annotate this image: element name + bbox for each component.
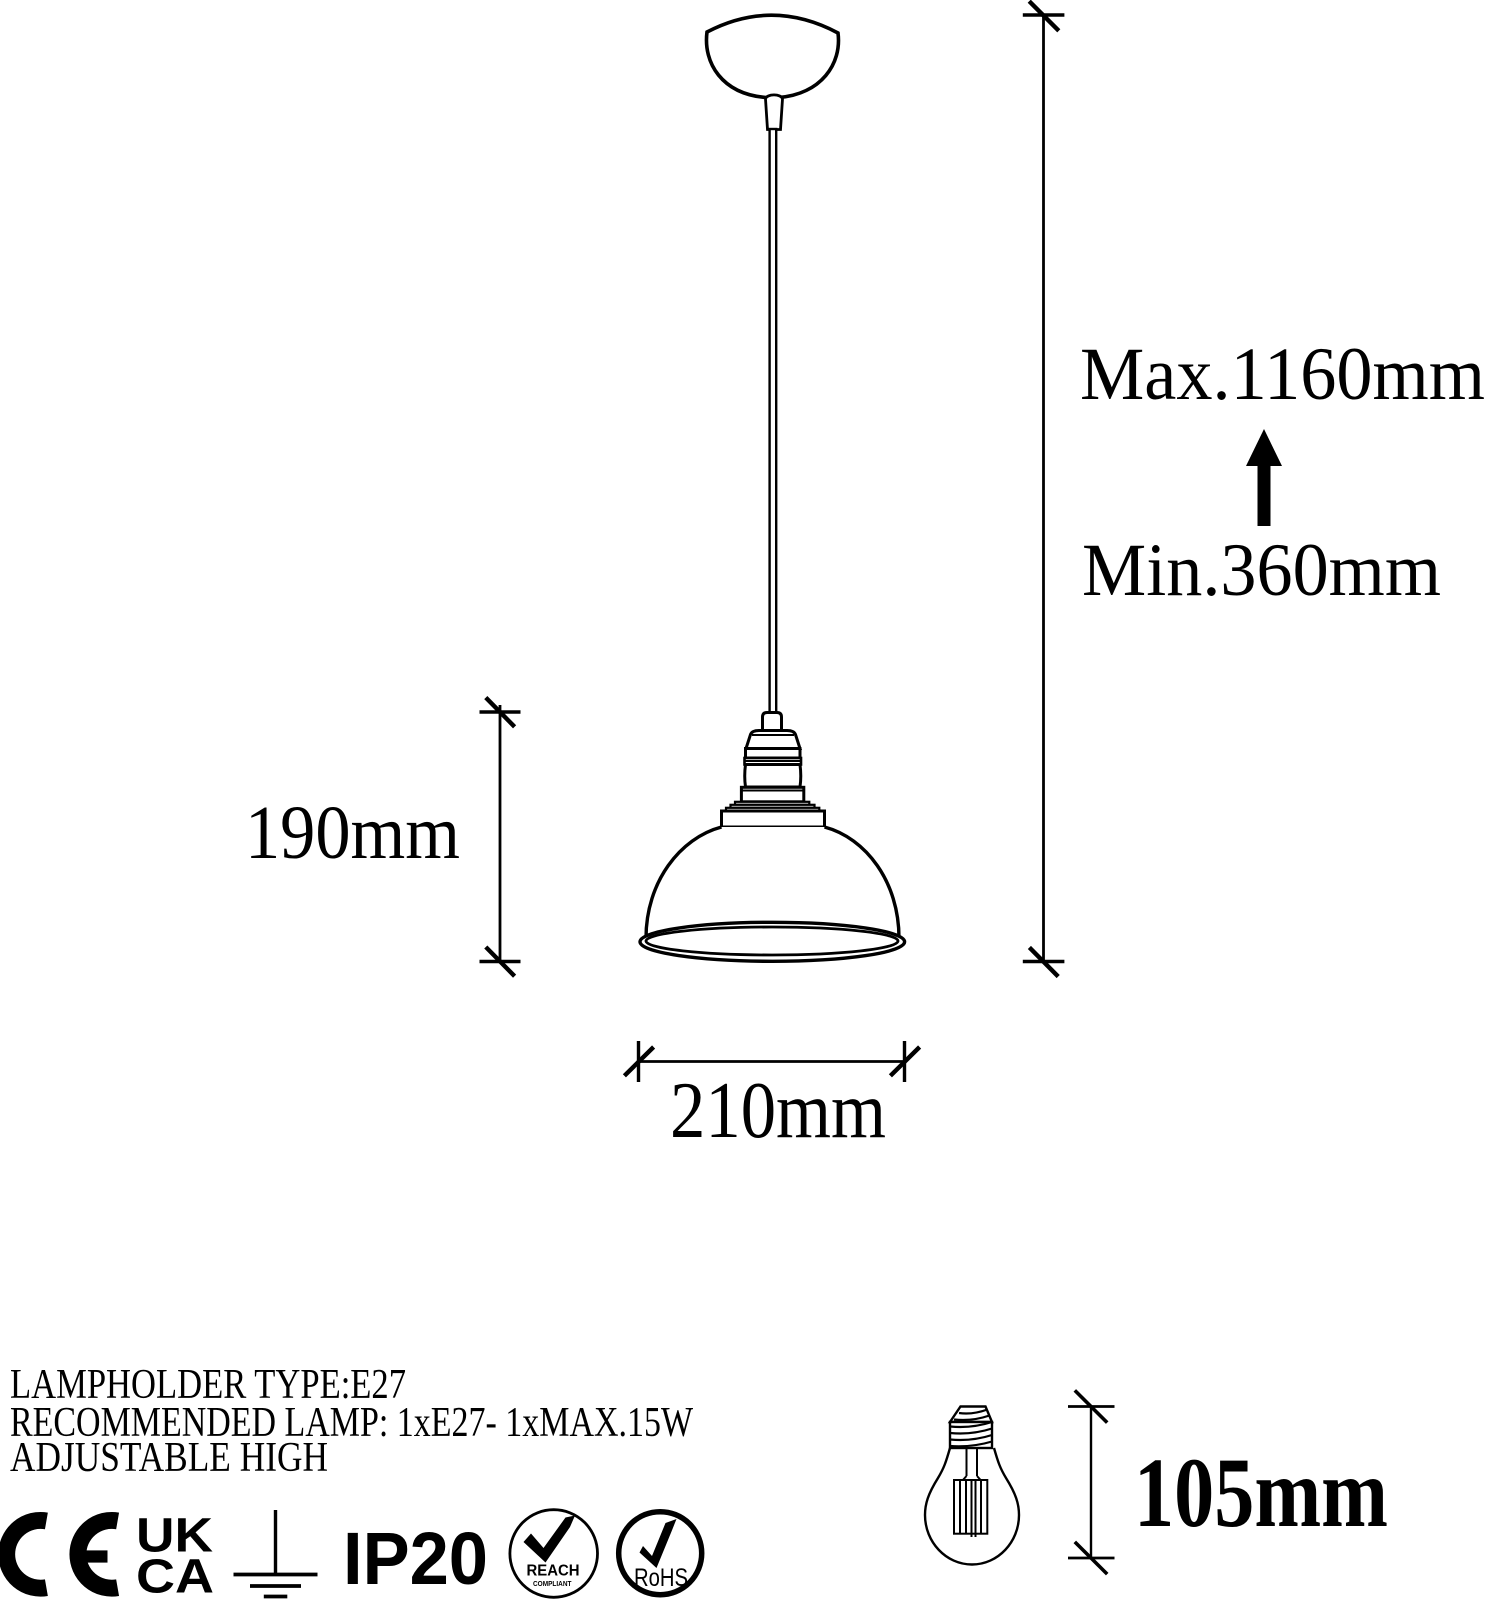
svg-text:IP20: IP20 [343,1517,488,1600]
svg-text:REACH: REACH [527,1563,580,1580]
svg-text:Min.360mm: Min.360mm [1082,529,1441,612]
svg-text:210mm: 210mm [670,1067,886,1155]
svg-text:ADJUSTABLE HIGH: ADJUSTABLE HIGH [10,1435,328,1481]
svg-text:105mm: 105mm [1134,1437,1388,1548]
svg-text:Max.1160mm: Max.1160mm [1080,333,1485,416]
svg-text:COMPLIANT: COMPLIANT [533,1581,572,1588]
svg-text:RoHS: RoHS [634,1564,688,1592]
svg-text:CA: CA [136,1551,214,1600]
svg-text:190mm: 190mm [245,791,460,875]
